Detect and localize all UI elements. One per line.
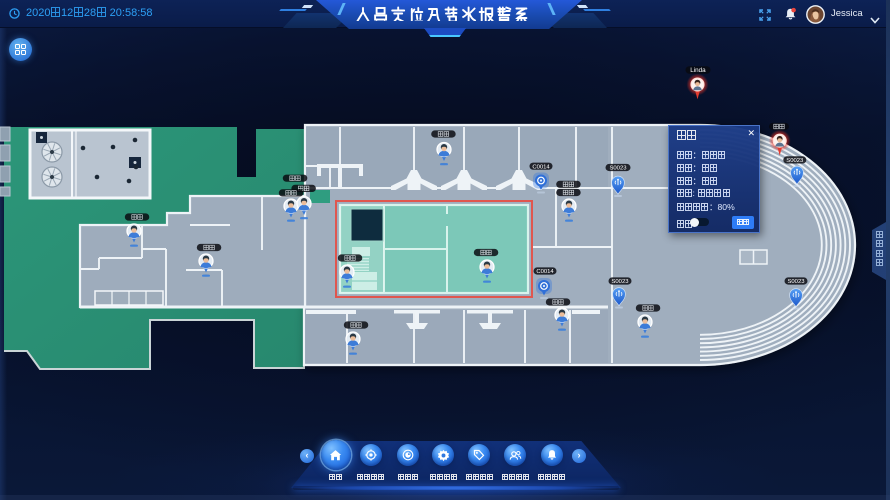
- svg-text:S0023: S0023: [611, 279, 629, 285]
- svg-text:S0023: S0023: [787, 279, 805, 285]
- svg-text:S0023: S0023: [609, 166, 627, 172]
- svg-text:Linda: Linda: [690, 67, 706, 74]
- svg-text:S0023: S0023: [786, 158, 804, 164]
- svg-text:C0014: C0014: [532, 164, 550, 170]
- svg-text:C0014: C0014: [536, 269, 554, 275]
